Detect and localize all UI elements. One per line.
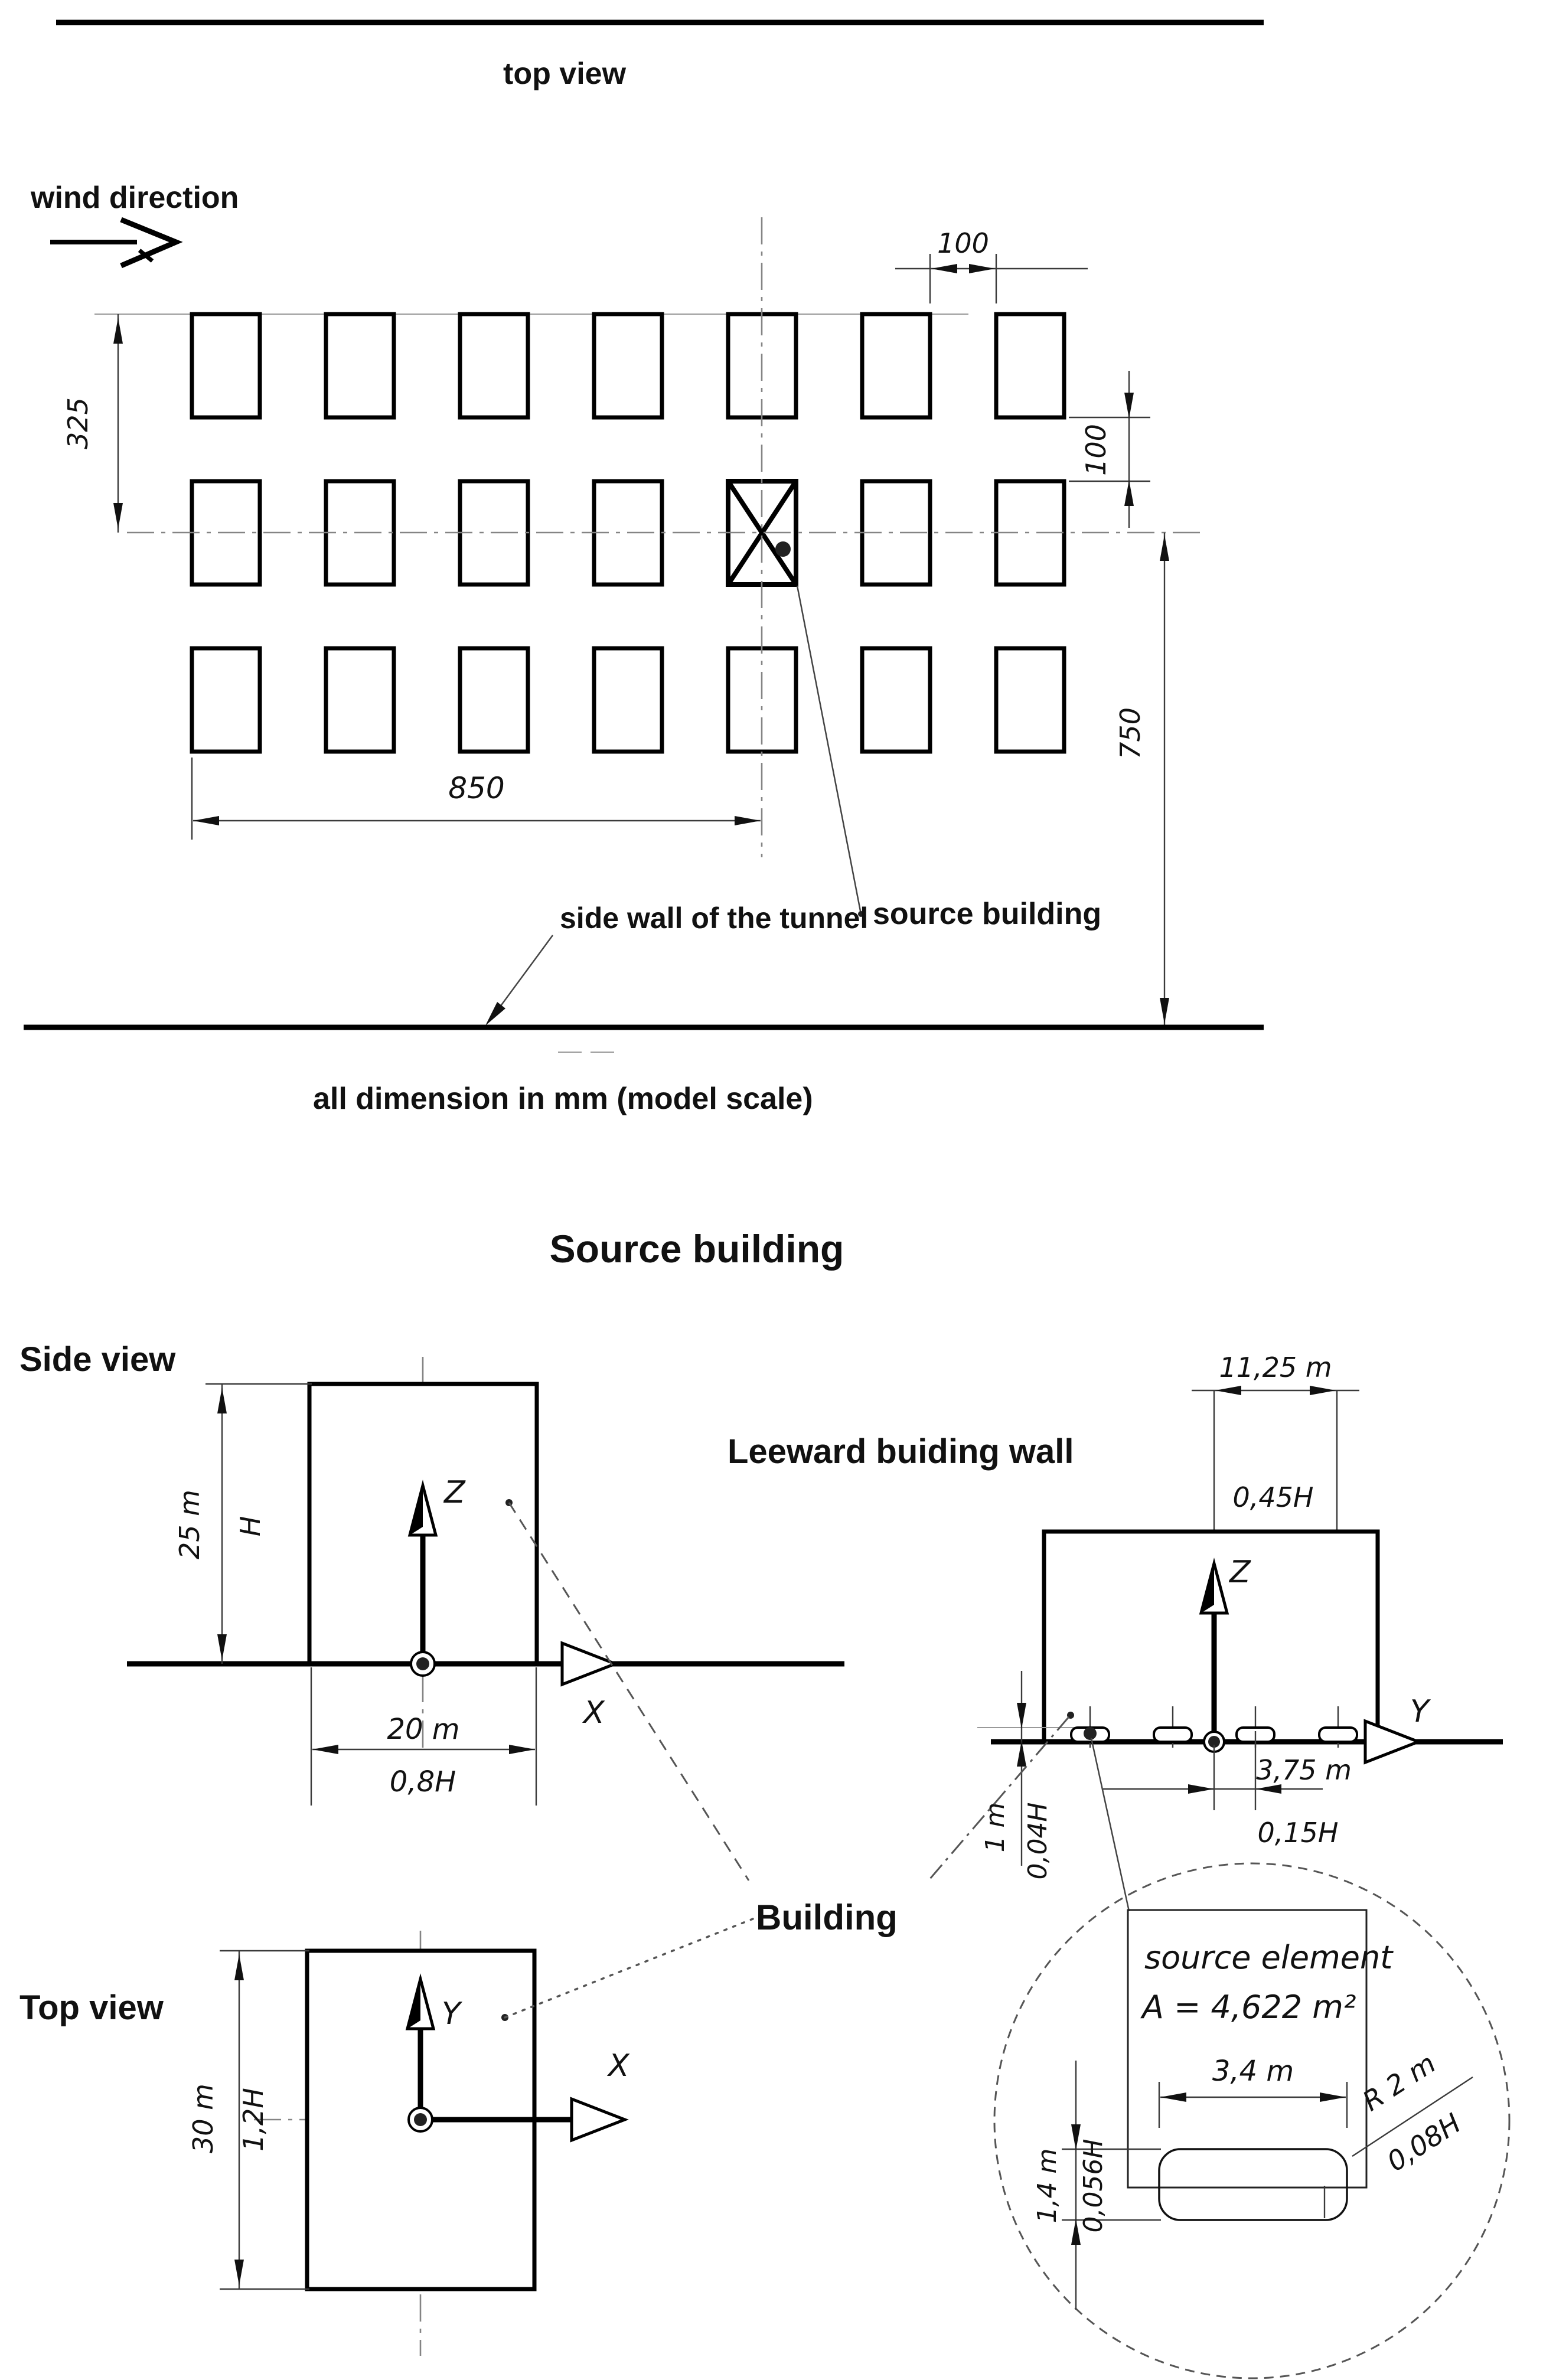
dim-12H-text: 1,2H: [237, 2088, 269, 2152]
dim-20m: 20 m 0,8H: [311, 1667, 536, 1806]
dim-375m: 3,75 m 0,15H: [1103, 1731, 1352, 1849]
source-building-label: source building: [873, 897, 1101, 931]
dim-100-rows: 100: [1069, 371, 1150, 528]
side-view-origin: [411, 1652, 435, 1676]
dim-015H-text: 0,15H: [1257, 1817, 1338, 1849]
wind-direction-arrow-icon: [50, 220, 176, 266]
technical-drawing-page: top view wind direction: [0, 0, 1543, 2380]
dim-100-row-text: 100: [1080, 424, 1112, 476]
dim-375m-text: 3,75 m: [1256, 1754, 1352, 1786]
dim-34m: 3,4 m: [1159, 2055, 1347, 2128]
dim-045H-text: 0,45H: [1232, 1481, 1313, 1513]
leeward-wall-view: Leeward buiding wall 11,25 m 0,45H: [728, 1351, 1503, 1911]
detail-anchor-dot: [1084, 1727, 1097, 1740]
top-view-heading: Top view: [19, 1989, 164, 2027]
side-wall-label: side wall of the tunnel: [560, 902, 868, 935]
leeward-z-label: Z: [1228, 1555, 1251, 1590]
side-wall-callout: side wall of the tunnel: [485, 902, 868, 1026]
dim-004H-text: 0,04H: [1023, 1802, 1053, 1879]
dim-H-text: H: [234, 1516, 266, 1537]
side-view-building-leader: [505, 1499, 749, 1881]
dim-850-text: 850: [448, 771, 504, 805]
dim-radius: R 2 m 0,08H: [1352, 2047, 1473, 2177]
top-view-y-label: Y: [442, 1996, 463, 2032]
source-element-shape: [1159, 2149, 1347, 2220]
leeward-y-label: Y: [1410, 1694, 1431, 1729]
side-view-z-label: Z: [443, 1475, 466, 1510]
top-view-x-label: X: [606, 2048, 630, 2084]
dim-14m: 1,4 m 0,056H: [1032, 2061, 1161, 2310]
dim-325-text: 325: [62, 397, 94, 449]
leeward-heading: Leeward buiding wall: [728, 1432, 1074, 1471]
tunnel-plan: top view wind direction: [24, 22, 1264, 1116]
side-view: Side view 25 m H Z X: [19, 1340, 844, 1881]
top-view-building-leader: [501, 1919, 753, 2021]
dim-1m-text: 1 m: [980, 1803, 1010, 1853]
dim-008H-text: 0,08H: [1381, 2107, 1466, 2178]
dim-750-text: 750: [1114, 707, 1146, 759]
dim-100-columns: 100: [895, 227, 1088, 303]
dim-750: 750: [1114, 533, 1169, 1026]
dim-08H-text: 0,8H: [390, 1765, 456, 1798]
building-top-view: Top view 30 m 1,2H Y X: [19, 1919, 753, 2356]
leeward-wall-rect: [1044, 1532, 1378, 1742]
side-view-x-label: X: [582, 1695, 605, 1731]
detail-leader-line: [1091, 1738, 1129, 1911]
dim-100-col-text: 100: [937, 227, 989, 259]
dim-20m-text: 20 m: [387, 1713, 459, 1746]
section-title: Source building: [550, 1227, 844, 1271]
source-element-detail: source element A = 4,622 m² 3,4 m R 2 m …: [994, 1863, 1509, 2378]
dim-30m-text: 30 m: [187, 2084, 219, 2153]
dim-25m: 25 m H: [174, 1384, 312, 1664]
units-note: all dimension in mm (model scale): [313, 1082, 813, 1116]
detail-area: A = 4,622 m²: [1140, 1989, 1356, 2026]
dim-1125m-text: 11,25 m: [1219, 1351, 1332, 1383]
source-building-callout: source building: [797, 586, 1101, 931]
dim-25m-text: 25 m: [174, 1490, 205, 1559]
plan-title: top view: [503, 57, 627, 91]
building-label: Building: [756, 1898, 898, 1937]
dim-0056H-text: 0,056H: [1078, 2139, 1108, 2232]
dim-34m-text: 3,4 m: [1212, 2055, 1294, 2088]
dim-325: 325: [62, 314, 123, 533]
dim-14m-text: 1,4 m: [1032, 2149, 1062, 2224]
dim-850: 850: [192, 758, 761, 840]
wind-direction-label: wind direction: [30, 181, 239, 215]
detail-name: source element: [1144, 1939, 1394, 1976]
top-view-origin: [409, 2108, 432, 2131]
side-view-heading: Side view: [19, 1340, 176, 1379]
